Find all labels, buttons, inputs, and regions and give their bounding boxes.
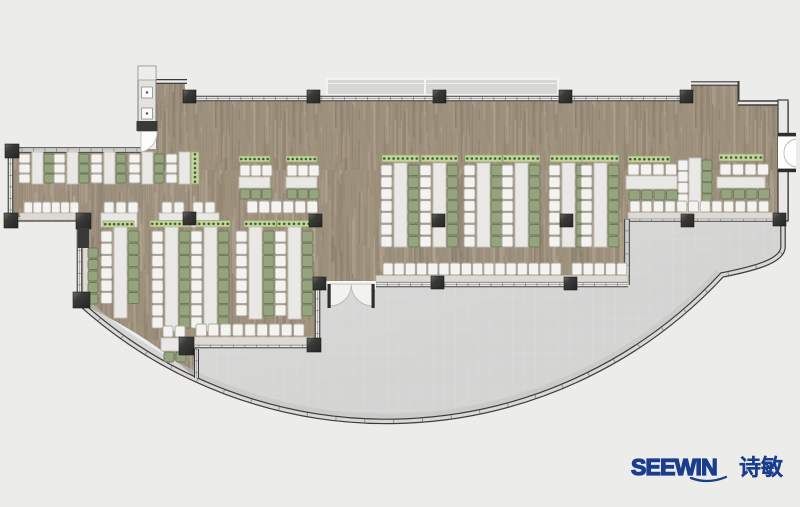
- svg-text:诗敏: 诗敏: [739, 455, 783, 480]
- svg-text:SEEWIN: SEEWIN: [631, 454, 717, 480]
